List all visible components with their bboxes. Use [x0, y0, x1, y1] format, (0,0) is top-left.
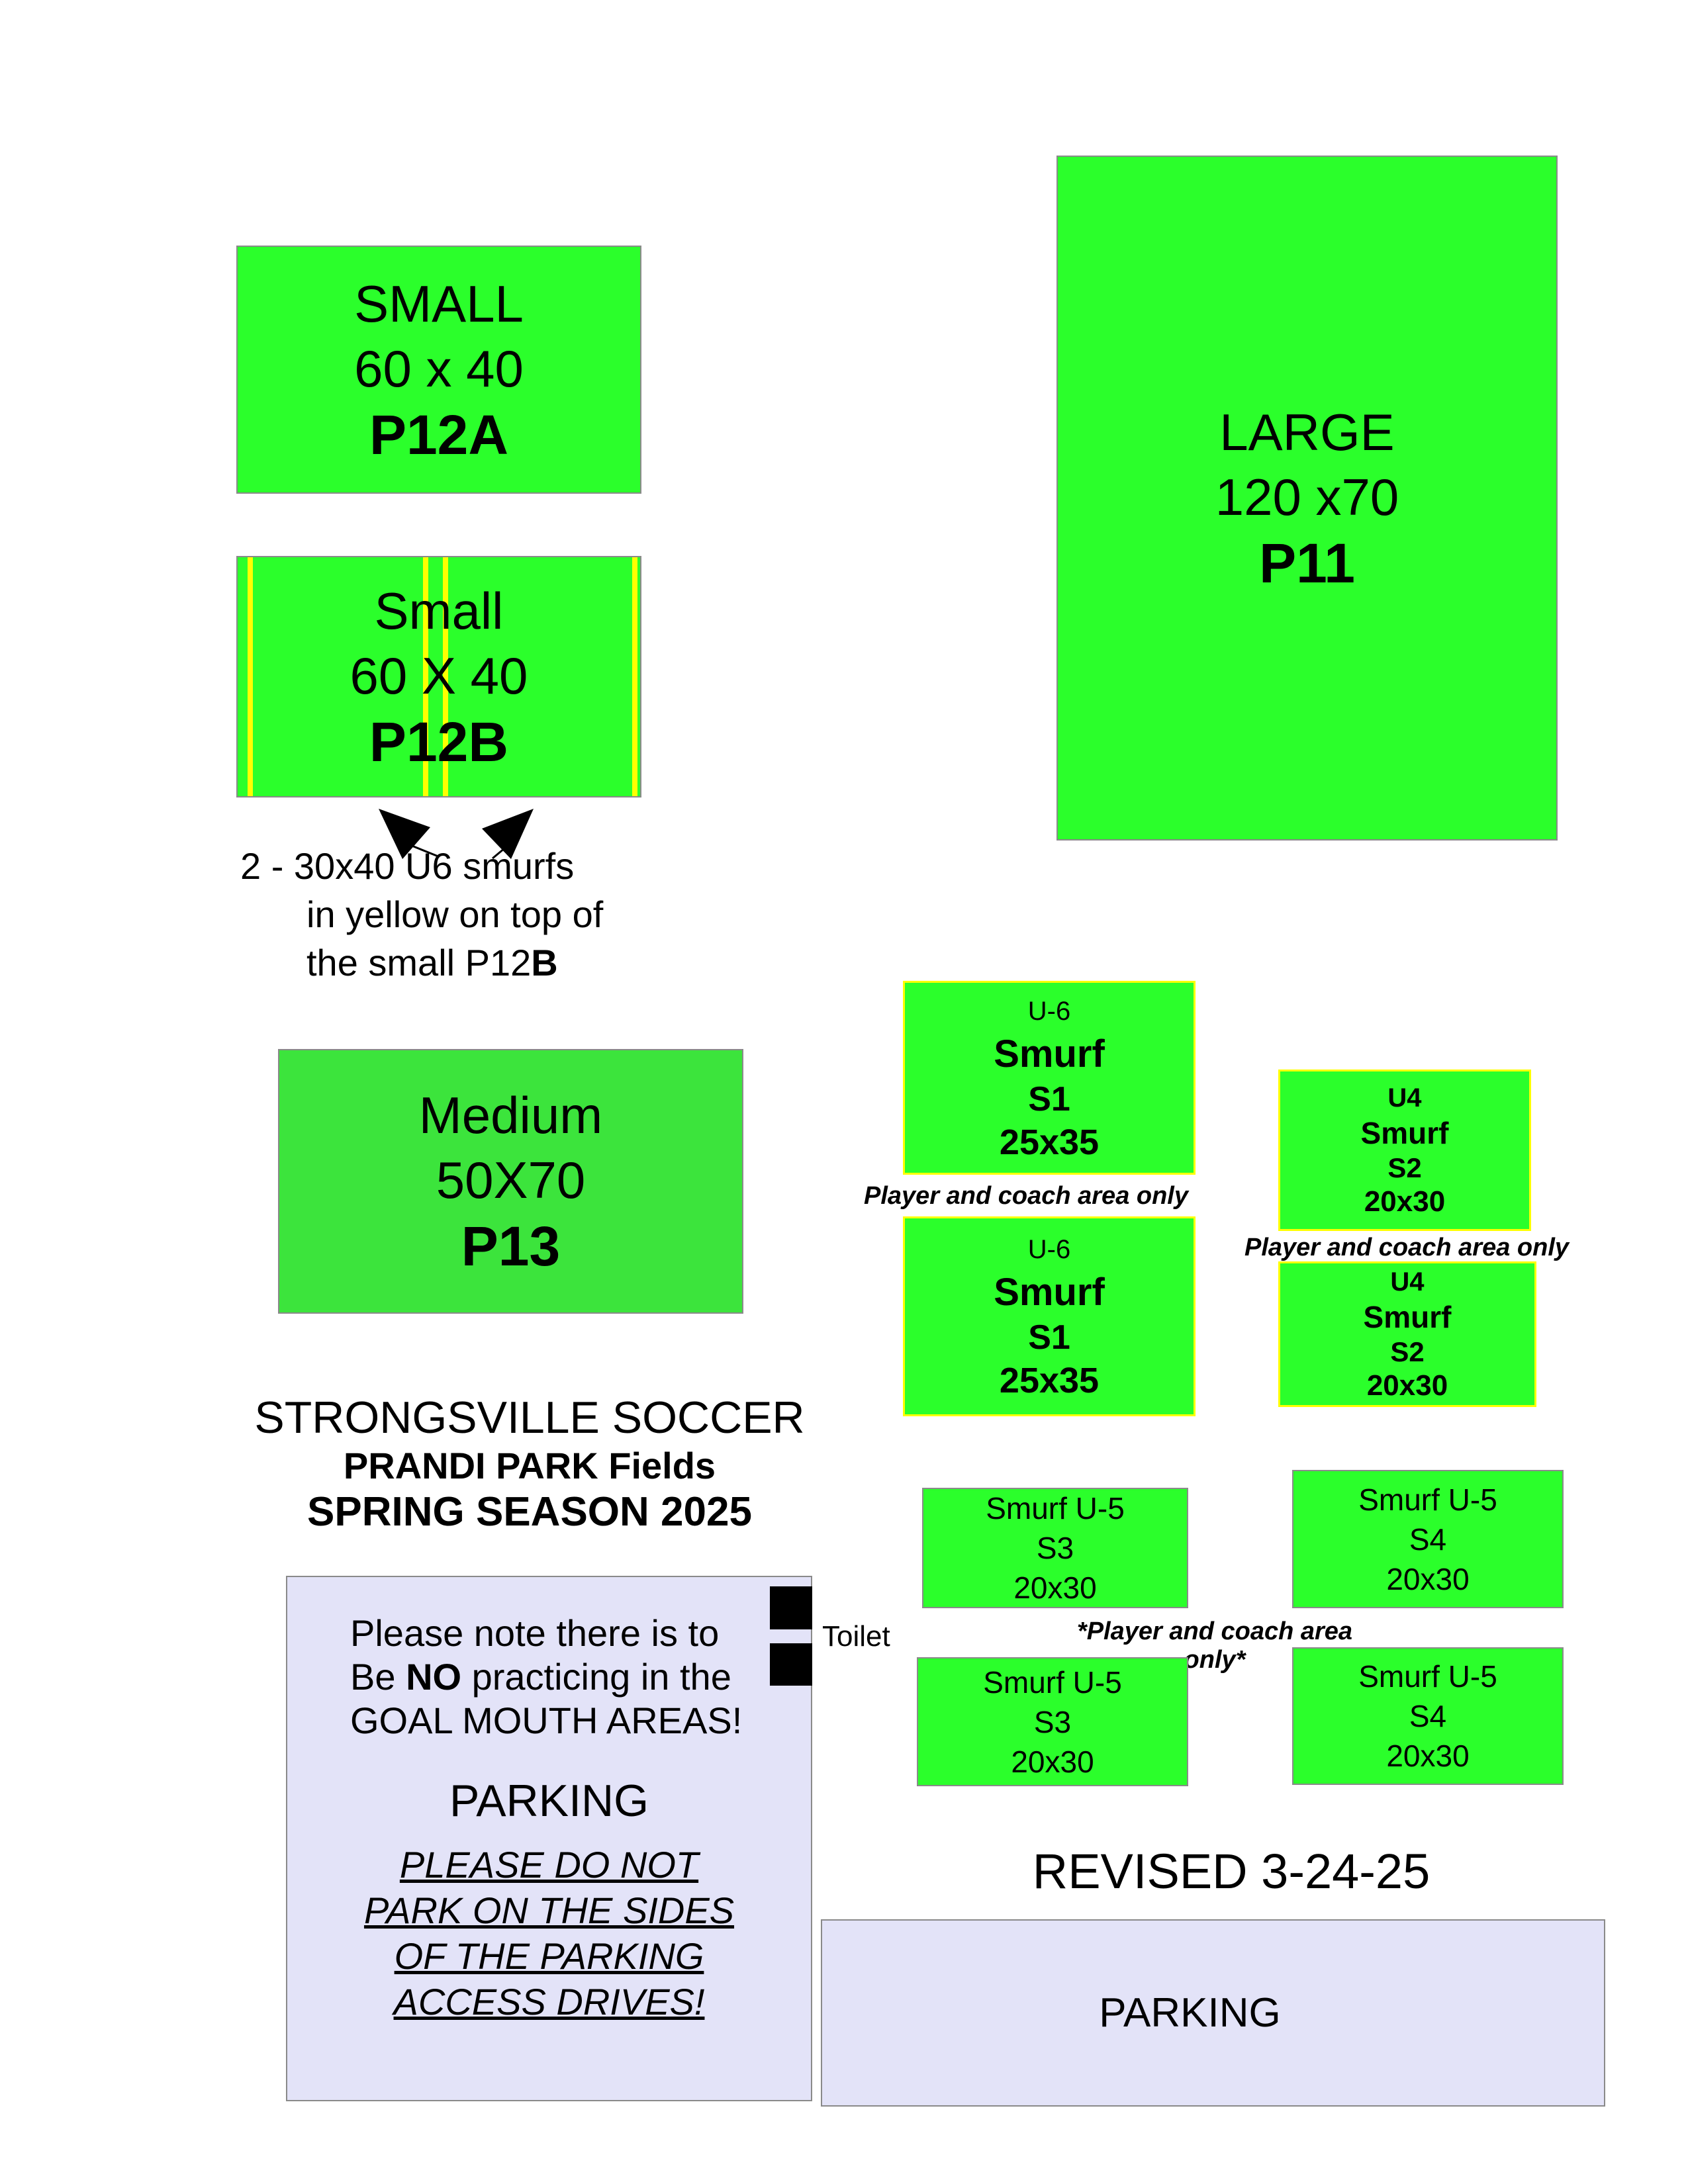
note-line: Be NO practicing in the	[350, 1655, 811, 1699]
field-size-label: 60 x 40	[354, 336, 524, 401]
field-type-label: Smurf	[1364, 1298, 1452, 1336]
u6-field-line	[248, 557, 253, 796]
player-coach-note-s2: Player and coach area only	[1244, 1234, 1569, 1262]
field-map-page: SMALL 60 x 40 P12A Small 60 X 40 P12B LA…	[0, 0, 1688, 2184]
field-s2-bottom: U4 Smurf S2 20x30	[1278, 1261, 1536, 1407]
field-size-label: 25x35	[1000, 1120, 1099, 1164]
field-name-label: Smurf U-5	[983, 1662, 1122, 1702]
field-s4-top: Smurf U-5 S4 20x30	[1292, 1470, 1564, 1608]
note-line: GOAL MOUTH AREAS!	[350, 1699, 811, 1743]
field-code-label: S1	[1028, 1078, 1070, 1120]
field-size-label: 60 X 40	[350, 643, 528, 708]
field-age-label: U-6	[1028, 992, 1070, 1030]
field-type-label: Smurf	[1361, 1115, 1449, 1152]
field-s1-bottom: U-6 Smurf S1 25x35	[903, 1216, 1196, 1416]
warning-line: PARK ON THE SIDES	[287, 1888, 811, 1933]
field-name-label: Small	[350, 578, 528, 643]
title-season: SPRING SEASON 2025	[245, 1488, 814, 1537]
note-line: the small P12B	[240, 938, 783, 987]
field-name-label: Smurf U-5	[1358, 1657, 1497, 1696]
title-org: STRONGSVILLE SOCCER	[245, 1391, 814, 1444]
field-age-label: U4	[1390, 1265, 1424, 1298]
field-code-label: P11	[1259, 529, 1355, 597]
field-age-label: U4	[1387, 1081, 1421, 1115]
field-p12b: Small 60 X 40 P12B	[236, 556, 641, 797]
smurf-stripes-note: 2 - 30x40 U6 smurfs in yellow on top of …	[240, 842, 783, 987]
field-size-label: 20x30	[1367, 1369, 1448, 1403]
warning-line: PLEASE DO NOT	[287, 1842, 811, 1888]
field-size-label: 20x30	[1364, 1185, 1445, 1219]
field-s3-top: Smurf U-5 S3 20x30	[922, 1488, 1188, 1608]
field-code-label: S4	[1409, 1696, 1446, 1736]
title-park: PRANDI PARK Fields	[245, 1444, 814, 1488]
parking-lot-area: PARKING	[821, 1919, 1605, 2107]
field-name-label: Medium	[419, 1083, 602, 1148]
field-code-label: S1	[1028, 1316, 1070, 1359]
field-code-label: S2	[1387, 1152, 1421, 1185]
field-size-label: 20x30	[1013, 1568, 1096, 1608]
field-p11: LARGE 120 x70 P11	[1056, 156, 1558, 841]
field-age-label: U-6	[1028, 1230, 1070, 1269]
field-code-label: S2	[1390, 1336, 1424, 1369]
field-type-label: Smurf	[994, 1030, 1105, 1078]
note-line: 2 - 30x40 U6 smurfs	[240, 842, 783, 890]
field-size-label: 120 x70	[1215, 465, 1399, 529]
field-size-label: 50X70	[436, 1148, 586, 1212]
revised-date: REVISED 3-24-25	[980, 1843, 1483, 1899]
field-code-label: P12A	[369, 401, 508, 469]
field-size-label: 20x30	[1386, 1736, 1469, 1776]
field-name-label: Smurf U-5	[986, 1488, 1125, 1528]
parking-notice-box: Please note there is to Be NO practicing…	[286, 1576, 812, 2101]
field-code-label: S3	[1034, 1702, 1071, 1742]
field-code-label: S3	[1037, 1528, 1074, 1568]
field-p12a: SMALL 60 x 40 P12A	[236, 246, 641, 494]
field-p13: Medium 50X70 P13	[278, 1049, 743, 1314]
warning-line: ACCESS DRIVES!	[287, 1979, 811, 2025]
field-code-label: P12B	[350, 708, 528, 776]
parking-heading: PARKING	[287, 1774, 811, 1827]
field-name-label: LARGE	[1219, 400, 1394, 465]
toilet-label: Toilet	[822, 1620, 890, 1653]
note-line: Please note there is to	[350, 1612, 811, 1655]
u6-field-line	[632, 557, 637, 796]
field-name-label: Smurf U-5	[1358, 1480, 1497, 1520]
field-s1-top: U-6 Smurf S1 25x35	[903, 981, 1196, 1175]
parking-warning: PLEASE DO NOT PARK ON THE SIDES OF THE P…	[287, 1842, 811, 2025]
field-s2-top: U4 Smurf S2 20x30	[1278, 1069, 1531, 1231]
toilet-marker-icon	[770, 1643, 812, 1686]
note-line: in yellow on top of	[240, 890, 783, 938]
player-coach-note-s1: Player and coach area only	[861, 1182, 1192, 1210]
warning-line: OF THE PARKING	[287, 1933, 811, 1979]
field-s3-bottom: Smurf U-5 S3 20x30	[917, 1657, 1188, 1786]
field-code-label: P13	[461, 1212, 560, 1280]
field-s4-bottom: Smurf U-5 S4 20x30	[1292, 1647, 1564, 1785]
goal-mouth-note: Please note there is to Be NO practicing…	[350, 1612, 811, 1743]
page-title: STRONGSVILLE SOCCER PRANDI PARK Fields S…	[245, 1391, 814, 1537]
field-code-label: S4	[1409, 1520, 1446, 1559]
field-size-label: 20x30	[1011, 1742, 1094, 1782]
field-type-label: Smurf	[994, 1269, 1105, 1316]
field-size-label: 25x35	[1000, 1359, 1099, 1402]
field-size-label: 20x30	[1386, 1559, 1469, 1599]
field-name-label: SMALL	[354, 271, 524, 336]
toilet-marker-icon	[770, 1586, 812, 1629]
parking-lot-label: PARKING	[1099, 1989, 1280, 2036]
